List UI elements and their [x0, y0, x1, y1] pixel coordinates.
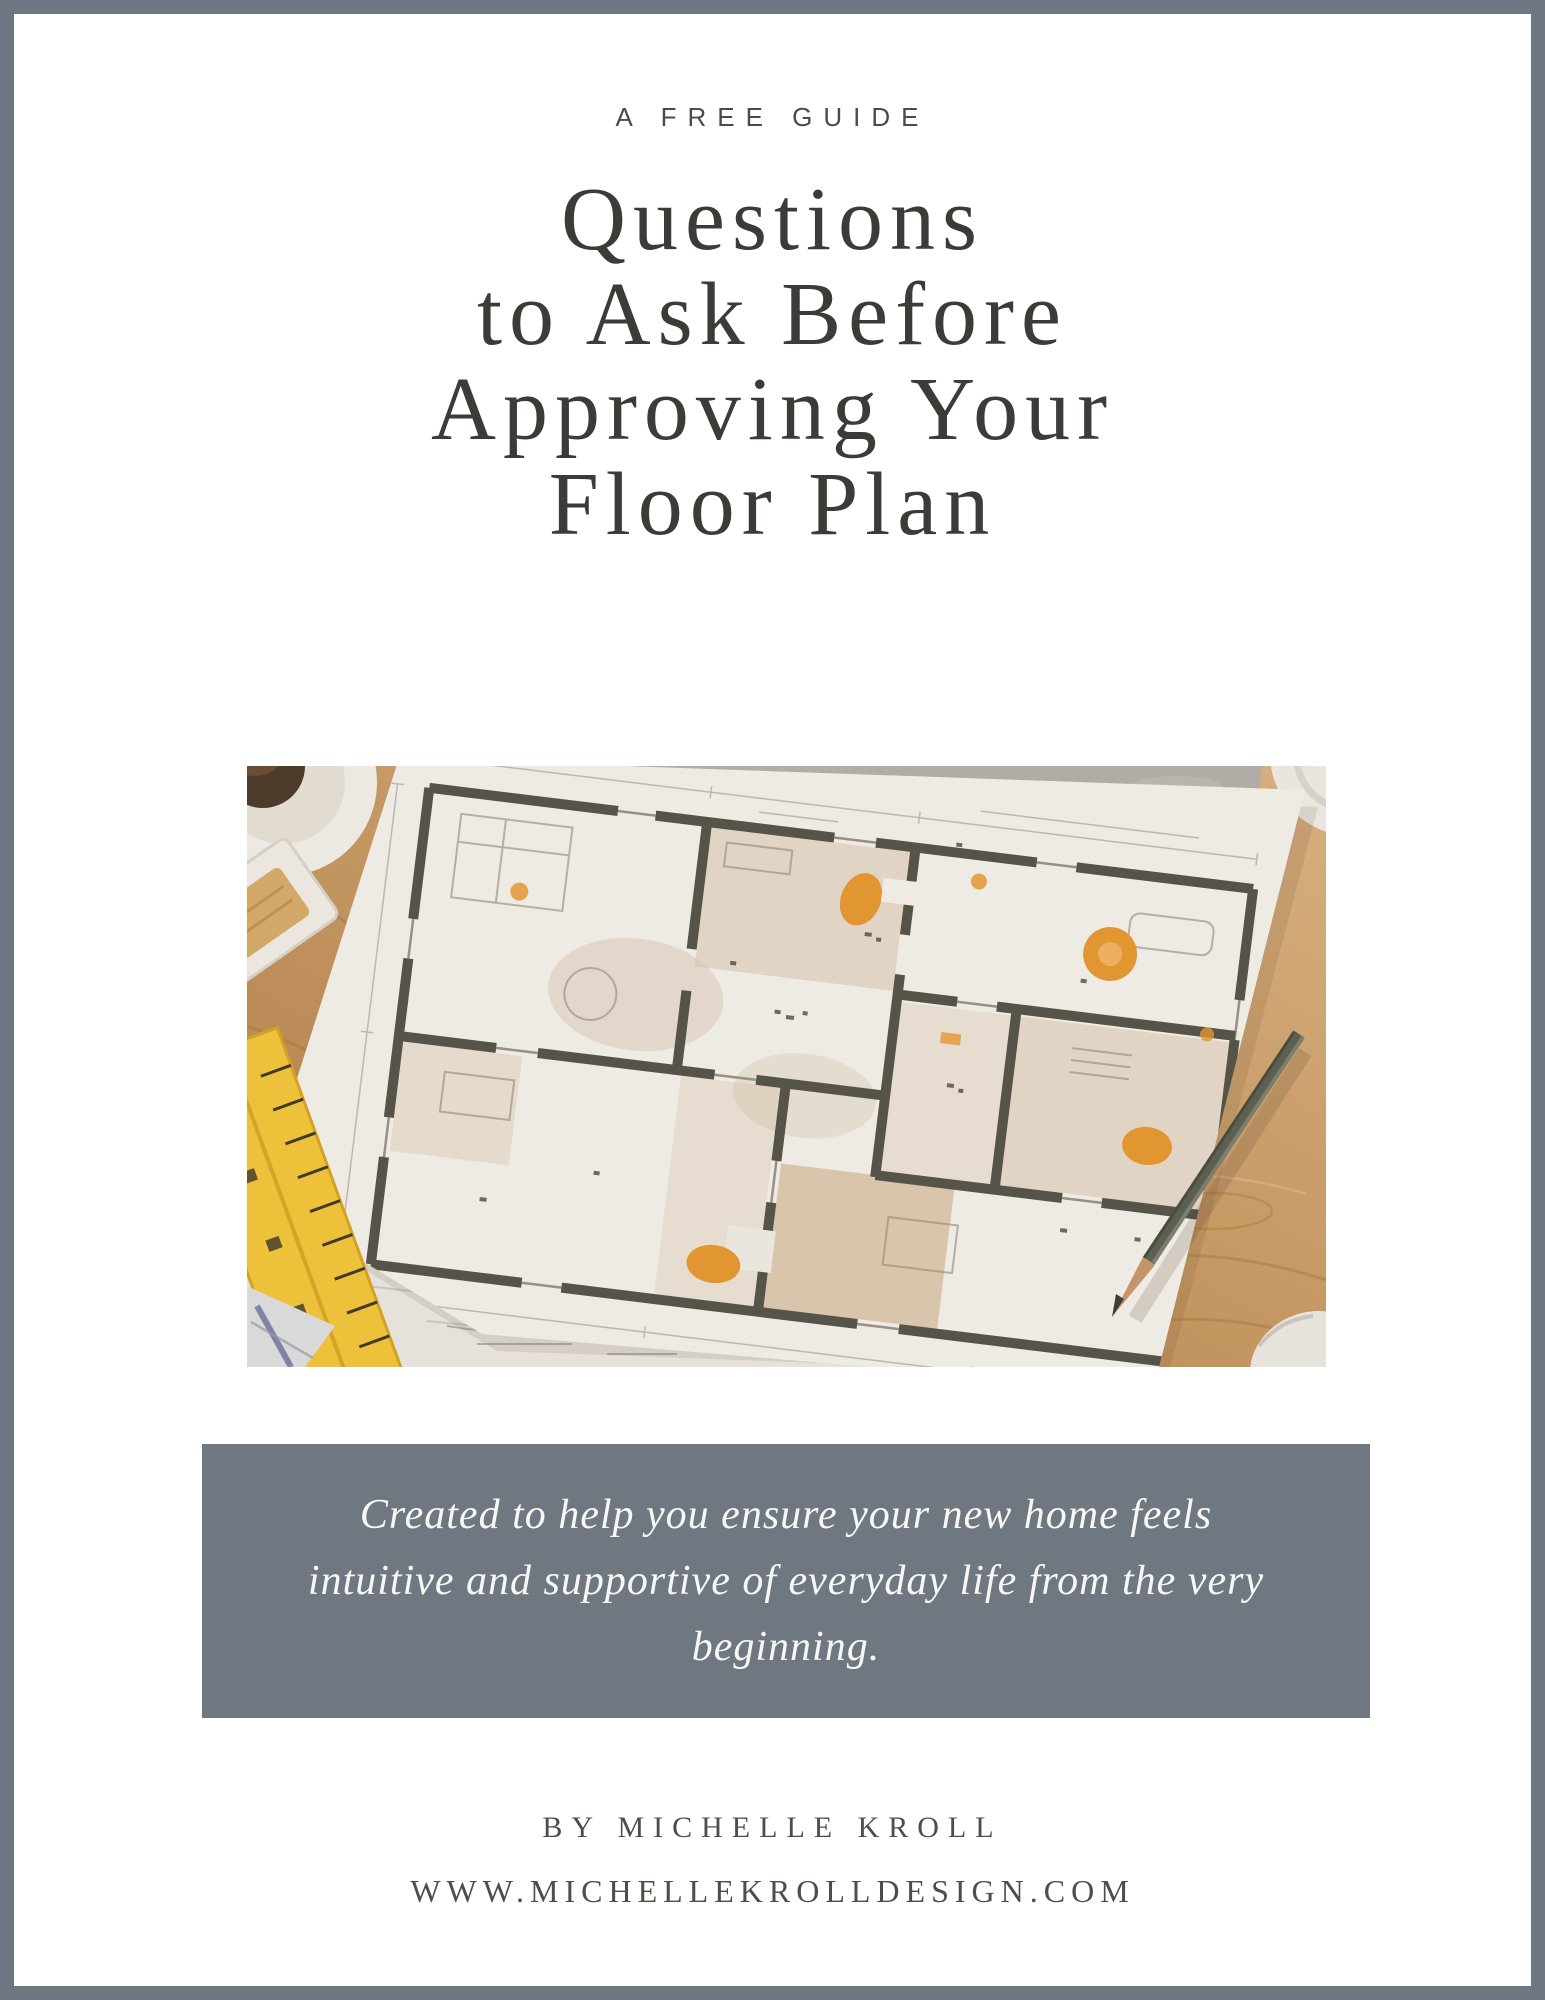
title-line-3: Approving Your — [14, 362, 1531, 457]
quote-line-1: Created to help you ensure your new home… — [360, 1482, 1212, 1548]
eyebrow-label: A FREE GUIDE — [14, 102, 1531, 133]
quote-line-3: beginning. — [692, 1614, 880, 1680]
floor-plan-photo — [247, 766, 1326, 1367]
website-url: WWW.MICHELLEKROLLDESIGN.COM — [14, 1873, 1531, 1910]
quote-line-2: intuitive and supportive of everyday lif… — [308, 1548, 1264, 1614]
title-line-2: to Ask Before — [14, 267, 1531, 362]
guide-cover-page: A FREE GUIDE Questions to Ask Before App… — [0, 0, 1545, 2000]
quote-box: Created to help you ensure your new home… — [202, 1444, 1370, 1718]
page-title: Questions to Ask Before Approving Your F… — [14, 172, 1531, 552]
floor-plan-illustration — [247, 766, 1326, 1367]
title-line-4: Floor Plan — [14, 457, 1531, 552]
title-line-1: Questions — [14, 172, 1531, 267]
author-byline: BY MICHELLE KROLL — [14, 1811, 1531, 1845]
